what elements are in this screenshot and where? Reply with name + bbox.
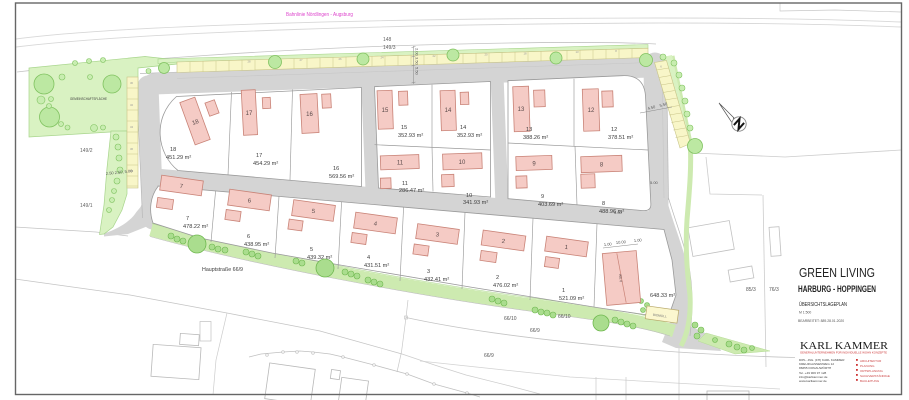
svg-text:13: 13 <box>575 50 579 54</box>
svg-text:SACHVERSTÄNDIGE: SACHVERSTÄNDIGE <box>860 374 890 378</box>
svg-text:18: 18 <box>170 147 176 153</box>
svg-text:454.29 m²: 454.29 m² <box>253 161 278 167</box>
svg-text:86655 DONAUWÖRTH: 86655 DONAUWÖRTH <box>799 366 831 370</box>
svg-text:149/3: 149/3 <box>383 45 396 51</box>
svg-text:4: 4 <box>367 255 370 261</box>
svg-text:7: 7 <box>186 216 189 222</box>
svg-text:11: 11 <box>397 161 404 167</box>
svg-text:9: 9 <box>541 194 544 200</box>
svg-text:16: 16 <box>333 166 339 172</box>
svg-text:26: 26 <box>338 57 342 61</box>
svg-text:66/10: 66/10 <box>558 314 571 320</box>
svg-text:28: 28 <box>247 60 251 64</box>
svg-text:27: 27 <box>299 58 303 62</box>
svg-text:2.00: 2.00 <box>415 48 420 57</box>
svg-text:18: 18 <box>523 52 527 56</box>
svg-text:12: 12 <box>611 127 617 133</box>
svg-text:432.41 m²: 432.41 m² <box>424 277 449 283</box>
svg-text:WE 8: WE 8 <box>618 274 623 283</box>
svg-text:17: 17 <box>246 111 253 117</box>
svg-text:10: 10 <box>459 160 466 166</box>
svg-text:GREEN LIVING: GREEN LIVING <box>799 265 875 280</box>
svg-text:66/9: 66/9 <box>530 328 540 334</box>
svg-text:378.51 m²: 378.51 m² <box>608 135 633 141</box>
svg-text:352.93 m²: 352.93 m² <box>398 133 423 139</box>
svg-text:2: 2 <box>496 275 499 281</box>
svg-text:1.00: 1.00 <box>604 241 613 247</box>
svg-text:521.09 m²: 521.09 m² <box>559 296 584 302</box>
svg-text:ÜBERSICHTSLAGEPLAN: ÜBERSICHTSLAGEPLAN <box>799 301 847 308</box>
svg-text:5.50: 5.50 <box>415 67 420 76</box>
svg-text:286.47 m²: 286.47 m² <box>399 188 424 194</box>
svg-text:352.93 m²: 352.93 m² <box>457 133 482 139</box>
svg-text:388.26 m²: 388.26 m² <box>523 135 548 141</box>
svg-text:403.69 m²: 403.69 m² <box>538 202 563 208</box>
svg-text:438.95 m²: 438.95 m² <box>244 242 269 248</box>
svg-text:439.32 m²: 439.32 m² <box>307 255 332 261</box>
svg-text:3.50: 3.50 <box>415 57 420 66</box>
svg-text:5: 5 <box>310 247 313 253</box>
svg-text:20: 20 <box>484 53 488 57</box>
svg-text:478.22 m²: 478.22 m² <box>183 224 208 230</box>
svg-text:15: 15 <box>401 125 407 131</box>
svg-text:ARCHITEKTUR: ARCHITEKTUR <box>860 359 882 363</box>
svg-text:451.29 m²: 451.29 m² <box>166 155 191 161</box>
svg-text:66/9: 66/9 <box>484 353 494 359</box>
svg-text:13: 13 <box>518 107 525 113</box>
svg-text:431.51 m²: 431.51 m² <box>364 263 389 269</box>
svg-text:11: 11 <box>402 181 408 187</box>
svg-text:PLANUNG: PLANUNG <box>860 364 875 368</box>
svg-text:www.karlkammer.de: www.karlkammer.de <box>799 379 827 383</box>
svg-text:76/3: 76/3 <box>769 287 779 293</box>
svg-text:Hauptstraße 66/9: Hauptstraße 66/9 <box>202 267 243 273</box>
svg-text:341.93 m²: 341.93 m² <box>463 200 488 206</box>
svg-text:34: 34 <box>130 125 134 129</box>
svg-text:GEMEINSCHAFTSFLÄCHE: GEMEINSCHAFTSFLÄCHE <box>70 96 107 101</box>
svg-text:10.00: 10.00 <box>616 239 627 245</box>
svg-text:149/1: 149/1 <box>80 203 93 209</box>
svg-text:5.00: 5.00 <box>650 180 659 185</box>
svg-text:148: 148 <box>383 37 392 43</box>
svg-text:M 1:500: M 1:500 <box>799 311 811 315</box>
svg-text:1.00: 1.00 <box>634 237 643 243</box>
svg-text:66/10: 66/10 <box>504 316 517 322</box>
svg-text:GENERALUNTERNEHMEN FÜR INDIVID: GENERALUNTERNEHMEN FÜR INDIVIDUELLE WOHN… <box>800 351 887 355</box>
svg-text:8: 8 <box>602 201 605 207</box>
svg-text:32: 32 <box>130 103 134 107</box>
svg-text:BAULEITUNG: BAULEITUNG <box>860 379 880 383</box>
svg-text:HARBURG - HOPPINGEN: HARBURG - HOPPINGEN <box>798 284 876 294</box>
svg-text:476.02 m²: 476.02 m² <box>493 283 518 289</box>
svg-text:3: 3 <box>427 269 430 275</box>
svg-text:BEARBEITET: 889.28.01.2020: BEARBEITET: 889.28.01.2020 <box>798 319 844 323</box>
svg-text:1: 1 <box>562 288 565 294</box>
svg-text:ORTSPLANUNG: ORTSPLANUNG <box>860 369 883 373</box>
svg-text:13: 13 <box>526 127 532 133</box>
svg-text:12: 12 <box>588 108 595 114</box>
svg-text:36: 36 <box>130 147 134 151</box>
svg-text:17: 17 <box>256 153 262 159</box>
svg-text:24: 24 <box>380 56 384 60</box>
svg-text:149/2: 149/2 <box>80 148 93 154</box>
svg-text:85/3: 85/3 <box>746 287 756 293</box>
svg-text:30: 30 <box>130 81 134 85</box>
svg-text:16: 16 <box>306 112 313 118</box>
svg-text:569.56 m²: 569.56 m² <box>329 174 354 180</box>
svg-text:14: 14 <box>445 108 452 114</box>
svg-text:Bahnlinie Nördlingen - Augsbur: Bahnlinie Nördlingen - Augsburg <box>286 12 353 18</box>
svg-text:22: 22 <box>432 54 436 58</box>
svg-text:5.00: 5.00 <box>614 210 623 215</box>
svg-text:10: 10 <box>466 193 472 199</box>
svg-text:15: 15 <box>382 108 389 114</box>
svg-text:14: 14 <box>460 125 466 131</box>
svg-text:648.33 m²: 648.33 m² <box>650 293 675 299</box>
svg-text:6: 6 <box>247 234 250 240</box>
